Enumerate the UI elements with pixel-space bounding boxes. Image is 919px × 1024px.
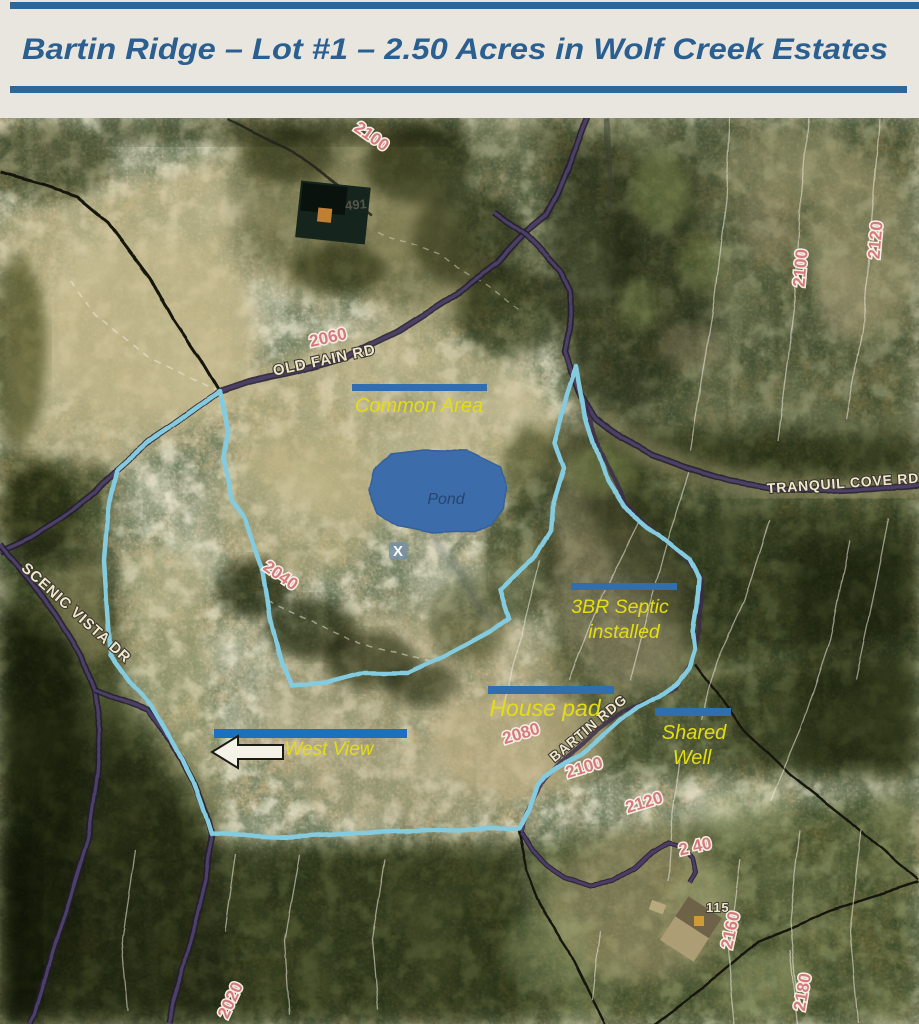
svg-text:2120: 2120 bbox=[864, 220, 886, 259]
svg-text:Common Area: Common Area bbox=[355, 395, 483, 417]
svg-text:491: 491 bbox=[344, 196, 367, 213]
svg-text:Shared: Shared bbox=[662, 722, 727, 744]
svg-text:West View: West View bbox=[284, 739, 374, 760]
svg-text:Pond: Pond bbox=[427, 491, 465, 508]
svg-text:Well: Well bbox=[673, 747, 712, 769]
svg-text:2100: 2100 bbox=[789, 248, 811, 287]
svg-text:X: X bbox=[393, 543, 403, 560]
svg-text:House pad: House pad bbox=[489, 695, 601, 721]
svg-text:installed: installed bbox=[588, 621, 661, 643]
svg-text:115: 115 bbox=[706, 900, 729, 915]
svg-text:Bartin Ridge – Lot #1 – 2.50 A: Bartin Ridge – Lot #1 – 2.50 Acres in Wo… bbox=[22, 33, 888, 66]
svg-text:3BR Septic: 3BR Septic bbox=[571, 596, 669, 618]
